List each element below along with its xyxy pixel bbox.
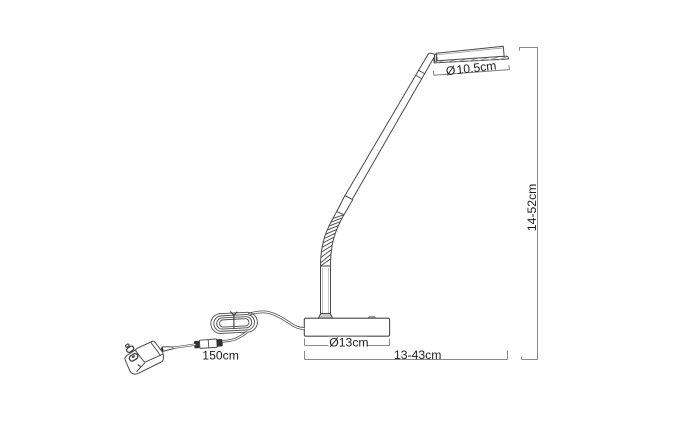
svg-text:150cm: 150cm [202,348,239,362]
svg-text:14-52cm: 14-52cm [525,184,539,231]
svg-text:13-43cm: 13-43cm [394,348,441,362]
svg-text:Ø13cm: Ø13cm [329,335,368,349]
